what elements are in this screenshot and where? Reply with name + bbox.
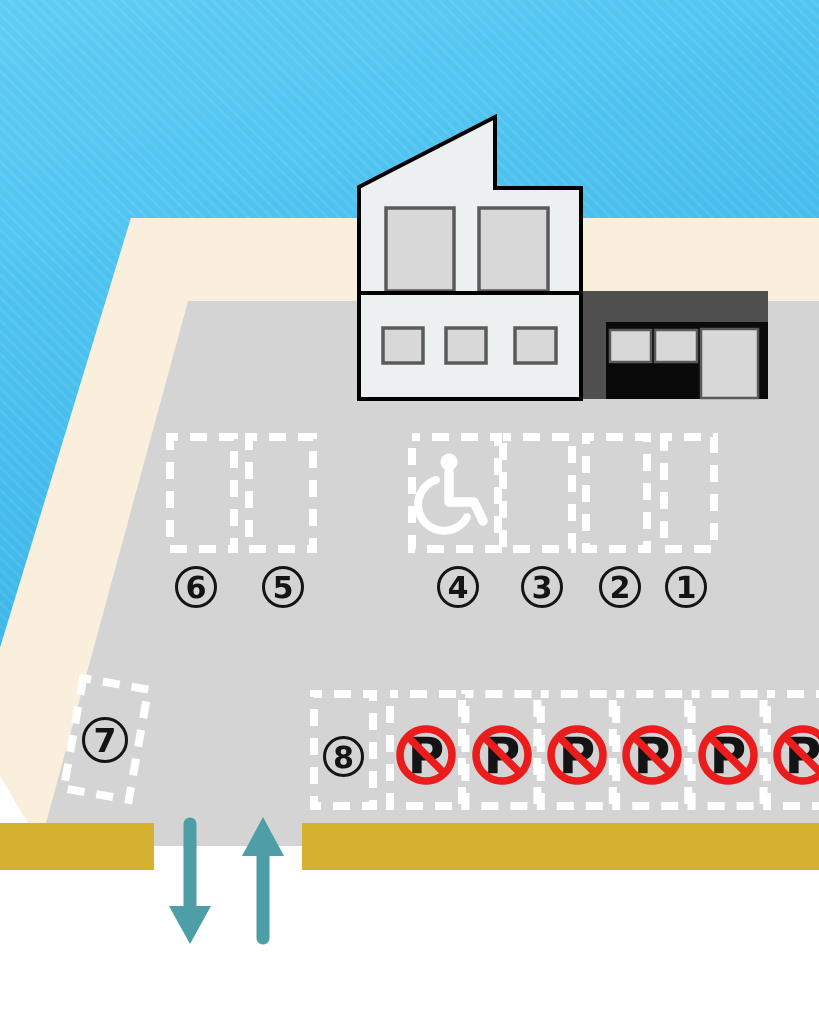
space-number: 2 (610, 571, 631, 606)
storefront-window (655, 330, 697, 362)
space-number-badge-2: 2 (601, 568, 640, 607)
no-parking-icon: P (626, 727, 678, 785)
storefront-door (701, 329, 758, 398)
space-number-badge-3: 3 (523, 568, 562, 607)
space-number-badge-6: 6 (177, 568, 216, 607)
space-number-badge-4: 4 (439, 568, 478, 607)
storefront-window (610, 330, 651, 362)
space-number: 3 (532, 571, 553, 606)
upper-window (386, 208, 454, 291)
ground-window (515, 328, 556, 363)
parking-lot-scene: P P P P P P 1 2 3 4 5 6 7 8 (0, 0, 819, 1024)
space-number: 6 (186, 571, 207, 606)
space-number-badge-5: 5 (264, 568, 303, 607)
space-number-badge-7: 7 (84, 719, 127, 762)
space-number: 5 (273, 571, 294, 606)
ground-window (446, 328, 486, 363)
no-parking-icon: P (702, 727, 754, 785)
space-number: 1 (676, 571, 697, 606)
no-parking-icon: P (400, 727, 452, 785)
space-number-badge-8: 8 (325, 738, 363, 777)
space-number-badge-1: 1 (667, 568, 706, 607)
space-number: 4 (448, 571, 469, 606)
road-left-segment (0, 823, 154, 870)
space-number: 8 (333, 741, 354, 776)
space-number: 7 (94, 721, 117, 760)
parking-lot-map: P P P P P P 1 2 3 4 5 6 7 8 (0, 0, 819, 1024)
no-parking-icon: P (476, 727, 528, 785)
no-parking-icon: P (551, 727, 603, 785)
ground-window (383, 328, 423, 363)
road-right-segment (302, 823, 819, 870)
upper-window (479, 208, 548, 291)
